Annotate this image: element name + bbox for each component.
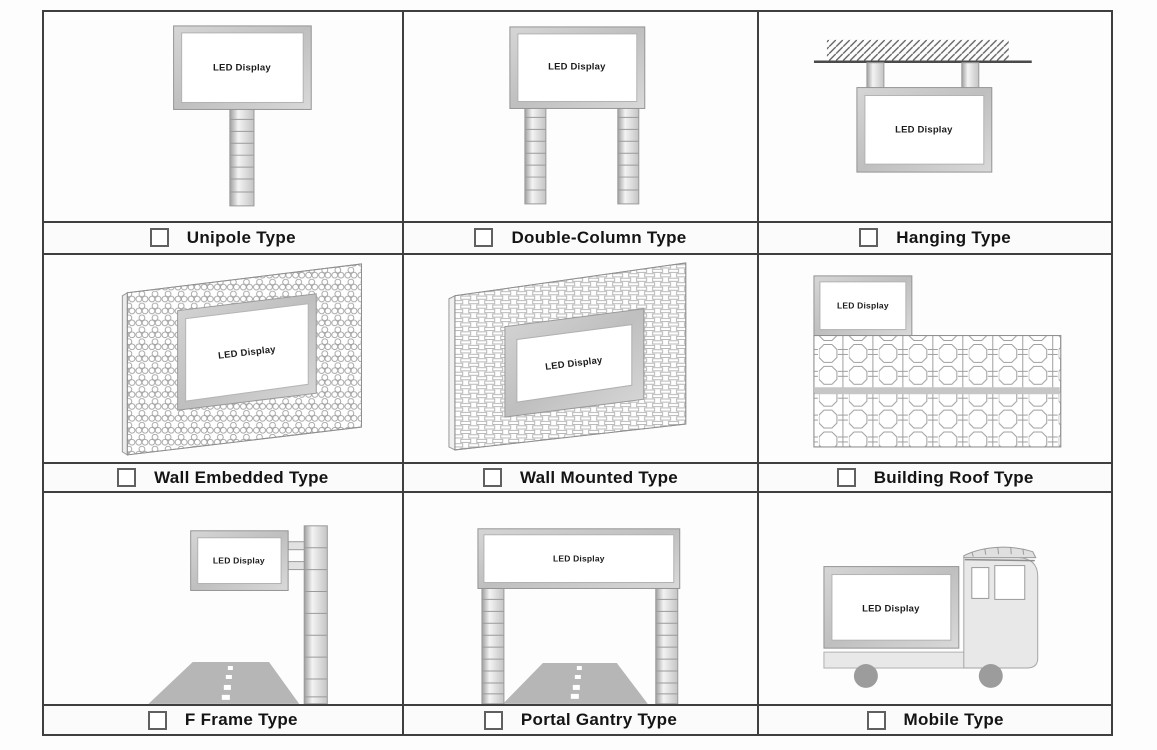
f-frame-illustration: LED Display [44,493,402,704]
hanging-billboard: LED Display [857,88,992,173]
installation-type-table: LED Display LED Display [42,10,1113,736]
mobile-label-cell: Mobile Type [759,706,1111,734]
double-column-label-cell: Double-Column Type [404,223,758,253]
building-roof-illustration: LED Display [759,255,1111,463]
unipole-pole [230,107,254,205]
gantry-billboard: LED Display [478,529,680,589]
truck-display: LED Display [824,567,959,649]
wall-embedded-checkbox[interactable] [117,468,136,487]
cab-window-rear [972,568,989,599]
ceiling [814,40,1032,62]
front-wheel [979,664,1003,688]
road [503,663,648,704]
mobile-checkbox[interactable] [867,711,886,730]
mobile-drawing-cell: LED Display [759,493,1111,704]
portal-gantry-label-cell: Portal Gantry Type [404,706,758,734]
led-display-screen-text: LED Display [837,300,889,310]
wall-mounted-illustration: LED Display [404,255,758,463]
wall-mounted-drawing-cell: LED Display [404,255,758,463]
hanging-label-cell: Hanging Type [759,223,1111,253]
unipole-illustration: LED Display [44,12,402,221]
unipole-checkbox[interactable] [150,228,169,247]
f-frame-label: F Frame Type [185,710,298,730]
led-display-screen-text: LED Display [213,556,265,566]
wall-embedded-label-cell: Wall Embedded Type [44,464,402,491]
double-column-label: Double-Column Type [511,228,686,248]
cab-roof [964,548,1036,558]
led-display-screen-text: LED Display [548,62,606,73]
hanging-checkbox[interactable] [859,228,878,247]
hanging-drawing-cell: LED Display [759,12,1111,221]
led-display-screen-text: LED Display [862,604,920,615]
led-display-screen-text: LED Display [895,124,953,135]
portal-gantry-drawing-cell: LED Display [404,493,758,704]
mobile-label: Mobile Type [904,710,1004,730]
f-frame-billboard: LED Display [191,531,288,591]
f-frame-label-cell: F Frame Type [44,706,402,734]
f-frame-drawing-cell: LED Display [44,493,402,704]
unipole-drawing-cell: LED Display [44,12,402,221]
wall-embedded-label: Wall Embedded Type [154,468,328,488]
double-columns [525,105,639,203]
double-column-billboard: LED Display [510,27,645,109]
wall-embedded-illustration: LED Display [44,255,402,463]
roof-display: LED Display [814,276,912,336]
building-facade [814,335,1061,446]
building-roof-checkbox[interactable] [837,468,856,487]
hanging-label: Hanging Type [896,228,1011,248]
wall-mounted-label-cell: Wall Mounted Type [404,464,758,491]
wall-embedded-drawing-cell: LED Display [44,255,402,463]
road [148,662,299,704]
led-installation-type-chart: LED Display LED Display [0,0,1157,750]
f-frame-checkbox[interactable] [148,711,167,730]
rear-wheel [854,664,878,688]
double-column-checkbox[interactable] [474,228,493,247]
building-roof-label-cell: Building Roof Type [759,464,1111,491]
led-display-screen-text: LED Display [553,554,605,564]
double-column-illustration: LED Display [404,12,758,221]
wall-mounted-label: Wall Mounted Type [520,468,678,488]
portal-gantry-label: Portal Gantry Type [521,710,677,730]
hanging-illustration: LED Display [759,12,1111,221]
building-roof-label: Building Roof Type [874,468,1034,488]
f-frame-pole [288,526,327,704]
led-display-screen-text: LED Display [213,63,271,74]
unipole-billboard: LED Display [174,26,312,110]
unipole-label: Unipole Type [187,228,296,248]
embedded-display: LED Display [178,293,317,409]
double-column-drawing-cell: LED Display [404,12,758,221]
wall-mounted-checkbox[interactable] [483,468,502,487]
portal-gantry-illustration: LED Display [404,493,758,704]
mounted-display: LED Display [505,308,644,416]
mobile-truck-illustration: LED Display [759,493,1111,704]
building-roof-drawing-cell: LED Display [759,255,1111,463]
cab-window-front [995,566,1025,600]
hanging-rods [867,63,979,89]
unipole-label-cell: Unipole Type [44,223,402,253]
portal-gantry-checkbox[interactable] [484,711,503,730]
